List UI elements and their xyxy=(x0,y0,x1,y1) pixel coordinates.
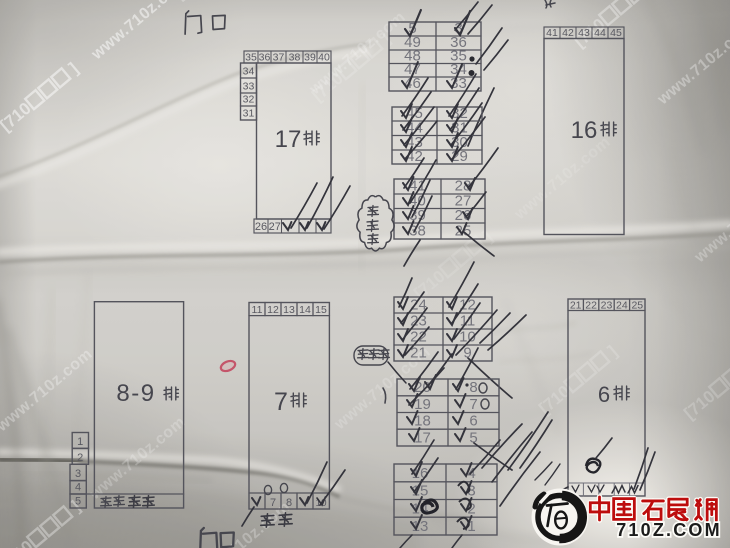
svg-text:45: 45 xyxy=(610,27,622,39)
svg-text:15: 15 xyxy=(315,304,327,316)
svg-text:37: 37 xyxy=(273,52,285,64)
svg-text:5: 5 xyxy=(469,429,477,446)
svg-text:8: 8 xyxy=(469,379,477,396)
svg-text:24: 24 xyxy=(616,300,628,312)
svg-text:6: 6 xyxy=(598,382,610,407)
svg-text:21: 21 xyxy=(570,300,582,312)
svg-text:13: 13 xyxy=(283,304,295,316)
svg-text:17: 17 xyxy=(414,429,431,446)
svg-text:6: 6 xyxy=(469,413,477,430)
svg-text:33: 33 xyxy=(450,75,467,92)
svg-text:42: 42 xyxy=(562,27,574,39)
svg-text:44: 44 xyxy=(594,27,606,39)
svg-text:www.710z.com: www.710z.com xyxy=(0,345,96,435)
svg-text:5: 5 xyxy=(75,496,81,508)
svg-text:40: 40 xyxy=(318,52,330,64)
svg-text:33: 33 xyxy=(243,81,255,93)
svg-text:7: 7 xyxy=(270,497,276,509)
svg-text:www.710z.com: www.710z.com xyxy=(191,498,294,548)
svg-text:26: 26 xyxy=(255,221,267,233)
svg-text:32: 32 xyxy=(243,94,255,106)
svg-text:22: 22 xyxy=(410,329,427,346)
svg-text:22: 22 xyxy=(585,300,597,312)
svg-text:1: 1 xyxy=(77,436,83,448)
svg-text:27: 27 xyxy=(269,221,281,233)
svg-text:25: 25 xyxy=(631,300,643,312)
svg-text:8-9: 8-9 xyxy=(116,380,155,407)
svg-text:8: 8 xyxy=(286,497,292,509)
svg-text:7: 7 xyxy=(469,396,477,413)
svg-text:7: 7 xyxy=(274,388,288,416)
svg-text:35: 35 xyxy=(245,52,257,64)
svg-text:31: 31 xyxy=(243,108,255,120)
svg-text:3: 3 xyxy=(75,468,81,480)
svg-text:710Z.COM: 710Z.COM xyxy=(616,520,722,540)
svg-text:23: 23 xyxy=(601,300,613,312)
svg-text:www.710z.com: www.710z.com xyxy=(654,18,730,108)
svg-text:16: 16 xyxy=(571,117,598,144)
svg-text:www.710z.com: www.710z.com xyxy=(691,176,730,266)
svg-text:[710: [710 xyxy=(170,0,208,3)
svg-text:38: 38 xyxy=(289,52,301,64)
svg-text:41: 41 xyxy=(546,27,558,39)
svg-text:12: 12 xyxy=(267,304,279,316)
svg-text:39: 39 xyxy=(304,52,316,64)
svg-text:36: 36 xyxy=(259,52,271,64)
svg-text:www.710z.com: www.710z.com xyxy=(511,133,614,223)
svg-text:4: 4 xyxy=(75,482,81,494)
svg-text:11: 11 xyxy=(252,304,263,316)
svg-text:17: 17 xyxy=(275,126,302,153)
svg-text:43: 43 xyxy=(578,27,590,39)
svg-text:14: 14 xyxy=(299,304,311,316)
svg-text:www.710z.com: www.710z.com xyxy=(88,0,191,64)
svg-text:www.710z.com: www.710z.com xyxy=(86,413,189,503)
svg-text:34: 34 xyxy=(243,66,255,78)
svg-text:2: 2 xyxy=(77,452,83,464)
